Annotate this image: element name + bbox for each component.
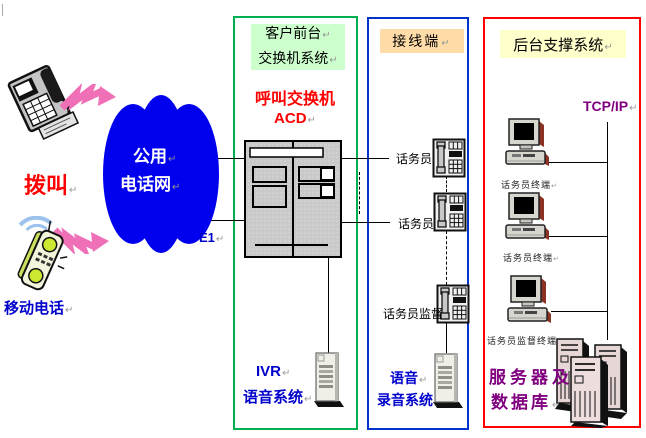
- dial-label-text: 拨叫: [24, 173, 68, 198]
- terminal2-label: 话务员终端↵: [503, 251, 560, 264]
- e1-label: E1↵: [199, 230, 224, 245]
- operator2-supervisor-dashed-line: [446, 231, 447, 285]
- operator1-text: 话务员: [396, 152, 432, 166]
- operator1-operator2-dashed-line: [446, 176, 447, 192]
- e1-label-text: E1: [199, 230, 215, 245]
- terminal1-text: 话务员终端: [501, 180, 551, 190]
- server-db-label-line2: 数据库↵: [491, 388, 563, 413]
- paragraph-mark: ↵: [553, 256, 560, 263]
- paragraph-mark: ↵: [329, 55, 337, 66]
- terminal2-branch-line: [549, 236, 607, 237]
- paragraph-mark: ↵: [69, 185, 77, 196]
- acd-title-line2: ACD↵: [247, 110, 343, 127]
- switch-to-operator2-line: [341, 222, 390, 223]
- acd-title-text2: ACD: [274, 110, 307, 127]
- paragraph-mark: ↵: [172, 182, 180, 193]
- paragraph-mark: ↵: [308, 115, 316, 126]
- paragraph-mark: ↵: [322, 30, 330, 41]
- front-title-line2: 交换机系统: [258, 50, 328, 66]
- recorder-text2: 录音系统: [377, 392, 433, 408]
- terminal-computer-icon-2: [503, 191, 551, 243]
- call-center-architecture-diagram: 拨叫↵ 公用↵ 电话网↵ 移动电话↵: [0, 0, 646, 438]
- ivr-server-icon: [311, 351, 345, 409]
- ivr-label-line2: 语音系统↵: [243, 386, 312, 407]
- pstn-cloud-label-line1: 公用↵: [133, 142, 176, 167]
- terminal2-text: 话务员终端: [503, 253, 553, 263]
- backend-title-text: 后台支撑系统: [513, 37, 603, 54]
- recorder-text1: 语音: [390, 370, 418, 386]
- terminal3-branch-line: [551, 311, 607, 312]
- backend-box-title: 后台支撑系统↵: [500, 30, 626, 58]
- acd-title-text1: 呼叫交换机: [255, 91, 335, 108]
- stray-cursor-mark: [2, 4, 3, 16]
- paragraph-mark: ↵: [282, 368, 290, 379]
- paragraph-mark: ↵: [168, 154, 176, 165]
- terminal1-label: 话务员终端↵: [501, 178, 558, 191]
- mobile-phone-label: 移动电话↵: [4, 297, 73, 318]
- operator2-text: 话务员: [398, 217, 434, 231]
- switch-to-ivr-line: [328, 257, 329, 353]
- supervisor-terminal-text: 话务员监督终端: [487, 336, 557, 346]
- ivr-label-line1: IVR↵: [256, 363, 290, 380]
- switch-to-operator1-line: [341, 158, 389, 159]
- supervisor-computer-icon: [505, 274, 553, 326]
- cloud-text-2: 电话网: [120, 175, 171, 194]
- supervisor-terminal-label: 话务员监督终端: [487, 334, 557, 347]
- recorder-label-line1: 语音↵: [390, 368, 427, 388]
- tcpip-label: TCP/IP↵: [583, 98, 638, 114]
- pstn-cloud-label-line2: 电话网↵: [120, 170, 180, 195]
- paragraph-mark: ↵: [629, 103, 637, 114]
- tcpip-bus-line: [607, 122, 608, 340]
- paragraph-mark: ↵: [216, 234, 224, 245]
- ivr-text2: 语音系统: [243, 389, 303, 406]
- terminal-computer-icon-1: [503, 117, 551, 169]
- paragraph-mark: ↵: [419, 375, 427, 386]
- paragraph-mark: ↵: [551, 183, 558, 190]
- server-db-text2: 数据库: [491, 393, 551, 412]
- mobile-phone-icon: [0, 216, 82, 302]
- supervisor-text: 话务员监督: [383, 307, 443, 321]
- server-db-text1: 服务器及: [489, 368, 573, 387]
- terminal-title-text: 接线端: [392, 33, 440, 49]
- paragraph-mark: ↵: [441, 38, 451, 49]
- voice-recorder-server-icon: [430, 352, 464, 410]
- acd-title-line1: 呼叫交换机: [247, 85, 343, 109]
- paragraph-mark: ↵: [552, 400, 563, 411]
- dial-label: 拨叫↵: [24, 168, 77, 200]
- supervisor-to-recorder-line: [446, 321, 447, 353]
- operator-phone-icon-1: [432, 138, 466, 178]
- operator1-label: 话务员: [396, 150, 432, 167]
- mobile-label-text: 移动电话: [4, 300, 64, 317]
- paragraph-mark: ↵: [604, 42, 612, 53]
- terminal1-branch-line: [549, 162, 607, 163]
- server-db-label-line1: 服务器及: [489, 363, 573, 388]
- cloud-text-1: 公用: [133, 147, 167, 166]
- front-title-line1: 客户前台: [265, 25, 321, 41]
- switch-dashed-line: [359, 172, 360, 214]
- operator-phone-icon-2: [433, 192, 467, 232]
- terminal-box-title: 接线端↵: [380, 29, 464, 53]
- paragraph-mark: ↵: [65, 305, 73, 316]
- supervisor-label: 话务员监督: [383, 305, 443, 322]
- front-system-title: 客户前台↵ 交换机系统↵: [251, 24, 345, 70]
- tcpip-text: TCP/IP: [583, 98, 628, 114]
- operator2-label: 话务员: [398, 215, 434, 232]
- acd-switch-icon: [244, 140, 342, 258]
- ivr-text1: IVR: [256, 363, 281, 380]
